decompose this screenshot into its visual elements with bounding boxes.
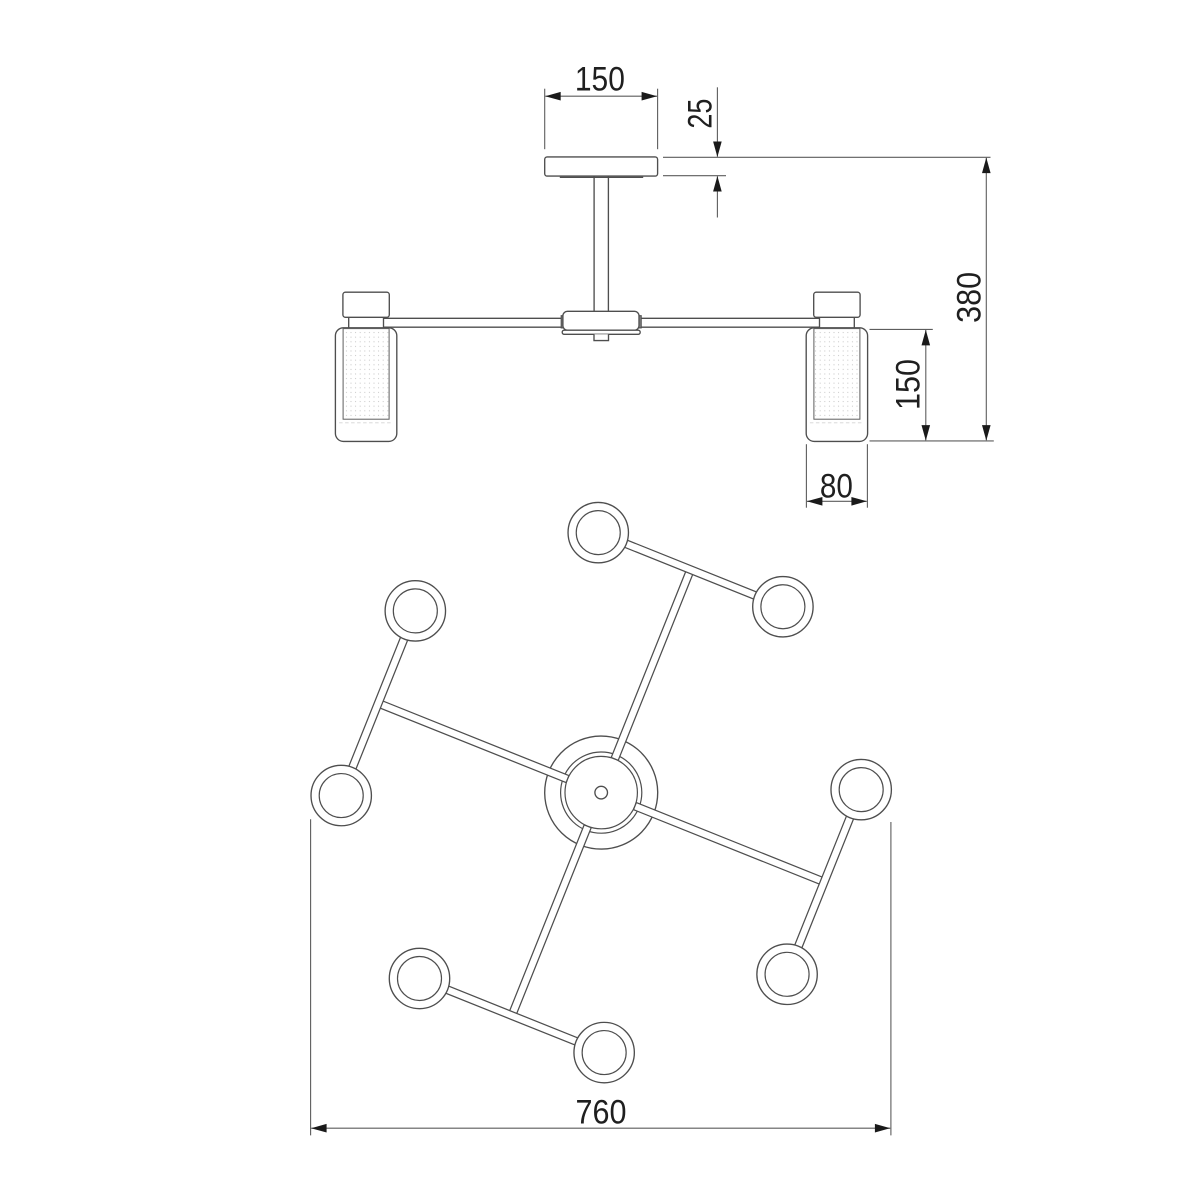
svg-text:150: 150 xyxy=(890,359,928,410)
svg-text:760: 760 xyxy=(576,1094,627,1132)
svg-text:80: 80 xyxy=(820,468,853,506)
svg-text:25: 25 xyxy=(681,99,719,129)
svg-text:380: 380 xyxy=(950,272,988,323)
svg-text:150: 150 xyxy=(575,61,625,99)
